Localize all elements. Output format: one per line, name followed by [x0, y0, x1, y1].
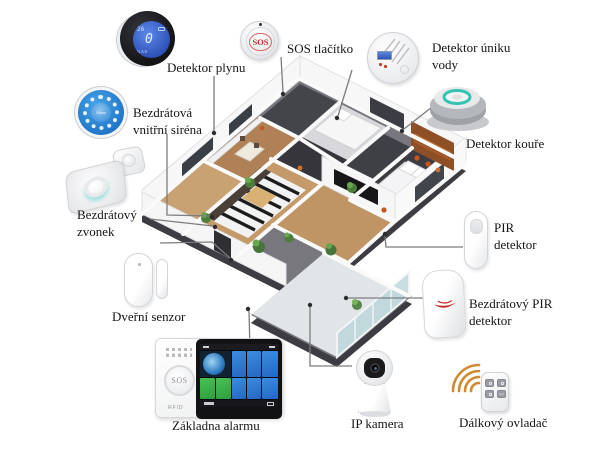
- wireless-pir-emblem-icon: [422, 270, 468, 340]
- water-leak-lcd: [377, 51, 392, 60]
- gas-lcd-value: 0: [145, 32, 153, 47]
- label-sos-button: SOS tlačítko: [287, 41, 353, 58]
- camera-face: [364, 358, 385, 378]
- water-leak-led: [384, 65, 387, 68]
- panel-rfid-label: RFID: [168, 405, 183, 411]
- sos-button-device: SOS: [240, 21, 279, 60]
- remote-disarm-button: [497, 379, 506, 387]
- gas-detector-body: 26 0 GAS: [120, 11, 175, 66]
- pir-lens: [470, 219, 483, 234]
- panel-sos-button: SOS: [164, 365, 195, 396]
- label-doorbell: Bezdrátový zvonek: [77, 207, 137, 240]
- smoke-detector-device: [424, 84, 492, 132]
- doorbell-chime-ring: [83, 174, 108, 200]
- gas-lcd-icon: [158, 27, 165, 31]
- gas-detector-lcd: 26 0 GAS: [133, 21, 170, 58]
- doorbell-device: [64, 146, 160, 212]
- door-sensor-device: [124, 252, 170, 308]
- sos-button-text: SOS: [249, 33, 271, 51]
- gas-lcd-temp: 26: [137, 26, 144, 33]
- panel-navbar: [200, 400, 278, 407]
- pir-detector-device: [464, 211, 488, 269]
- camera-body: [358, 383, 391, 413]
- door-sensor-led: [138, 263, 141, 266]
- label-water-leak: Detektor úniku vody: [432, 40, 510, 73]
- alarm-panel-device: SOS RFID: [155, 338, 283, 418]
- remote-arm-button: [485, 379, 494, 387]
- smoke-detector-icon: [424, 84, 492, 132]
- water-leak-led: [379, 63, 382, 66]
- panel-display: [200, 344, 278, 407]
- camera-head: [356, 350, 393, 386]
- remote-sos-button: sos: [497, 390, 506, 398]
- label-wireless-pir: Bezdrátový PIR detektor: [469, 296, 552, 329]
- panel-speaker-grill: [166, 348, 192, 357]
- label-door-sensor: Dveřní senzor: [112, 309, 185, 326]
- water-leak-vents-icon: [368, 33, 418, 83]
- label-alarm-panel: Základna alarmu: [172, 418, 260, 435]
- label-indoor-siren: Bezdrátová vnitřní siréna: [133, 105, 202, 138]
- label-pir-detector: PIR detektor: [494, 220, 537, 253]
- water-leak-detector-device: [367, 32, 419, 84]
- remote-home-button: [485, 390, 494, 398]
- panel-statusbar: [200, 344, 278, 350]
- label-remote: Dálkový ovladač: [459, 415, 547, 432]
- siren-text: Siren: [96, 110, 106, 115]
- camera-lens-icon: [370, 363, 380, 373]
- panel-screen: [196, 339, 282, 419]
- rf-waves-icon: [447, 357, 481, 393]
- smart-home-diagram: 26 0 GAS SOS: [0, 0, 600, 450]
- remote-control-device: sos: [481, 372, 509, 412]
- label-smoke-detector: Detektor kouře: [466, 136, 544, 153]
- indoor-siren-device: Siren: [74, 86, 128, 139]
- label-gas-detector: Detektor plynu: [167, 60, 245, 77]
- panel-globe-tile: [200, 351, 231, 377]
- sos-led: [259, 23, 262, 26]
- siren-center: Siren: [91, 103, 111, 122]
- door-sensor-magnet: [156, 259, 168, 299]
- wireless-pir-detector-device: [421, 269, 467, 339]
- label-ip-camera: IP kamera: [351, 416, 404, 433]
- gas-lcd-unit: GAS: [137, 49, 148, 54]
- ip-camera-device: [354, 350, 396, 418]
- door-sensor-body: [124, 253, 153, 307]
- panel-sos-text: SOS: [171, 376, 187, 385]
- water-leak-test-button: [400, 65, 409, 74]
- sos-button-face: SOS: [246, 27, 275, 56]
